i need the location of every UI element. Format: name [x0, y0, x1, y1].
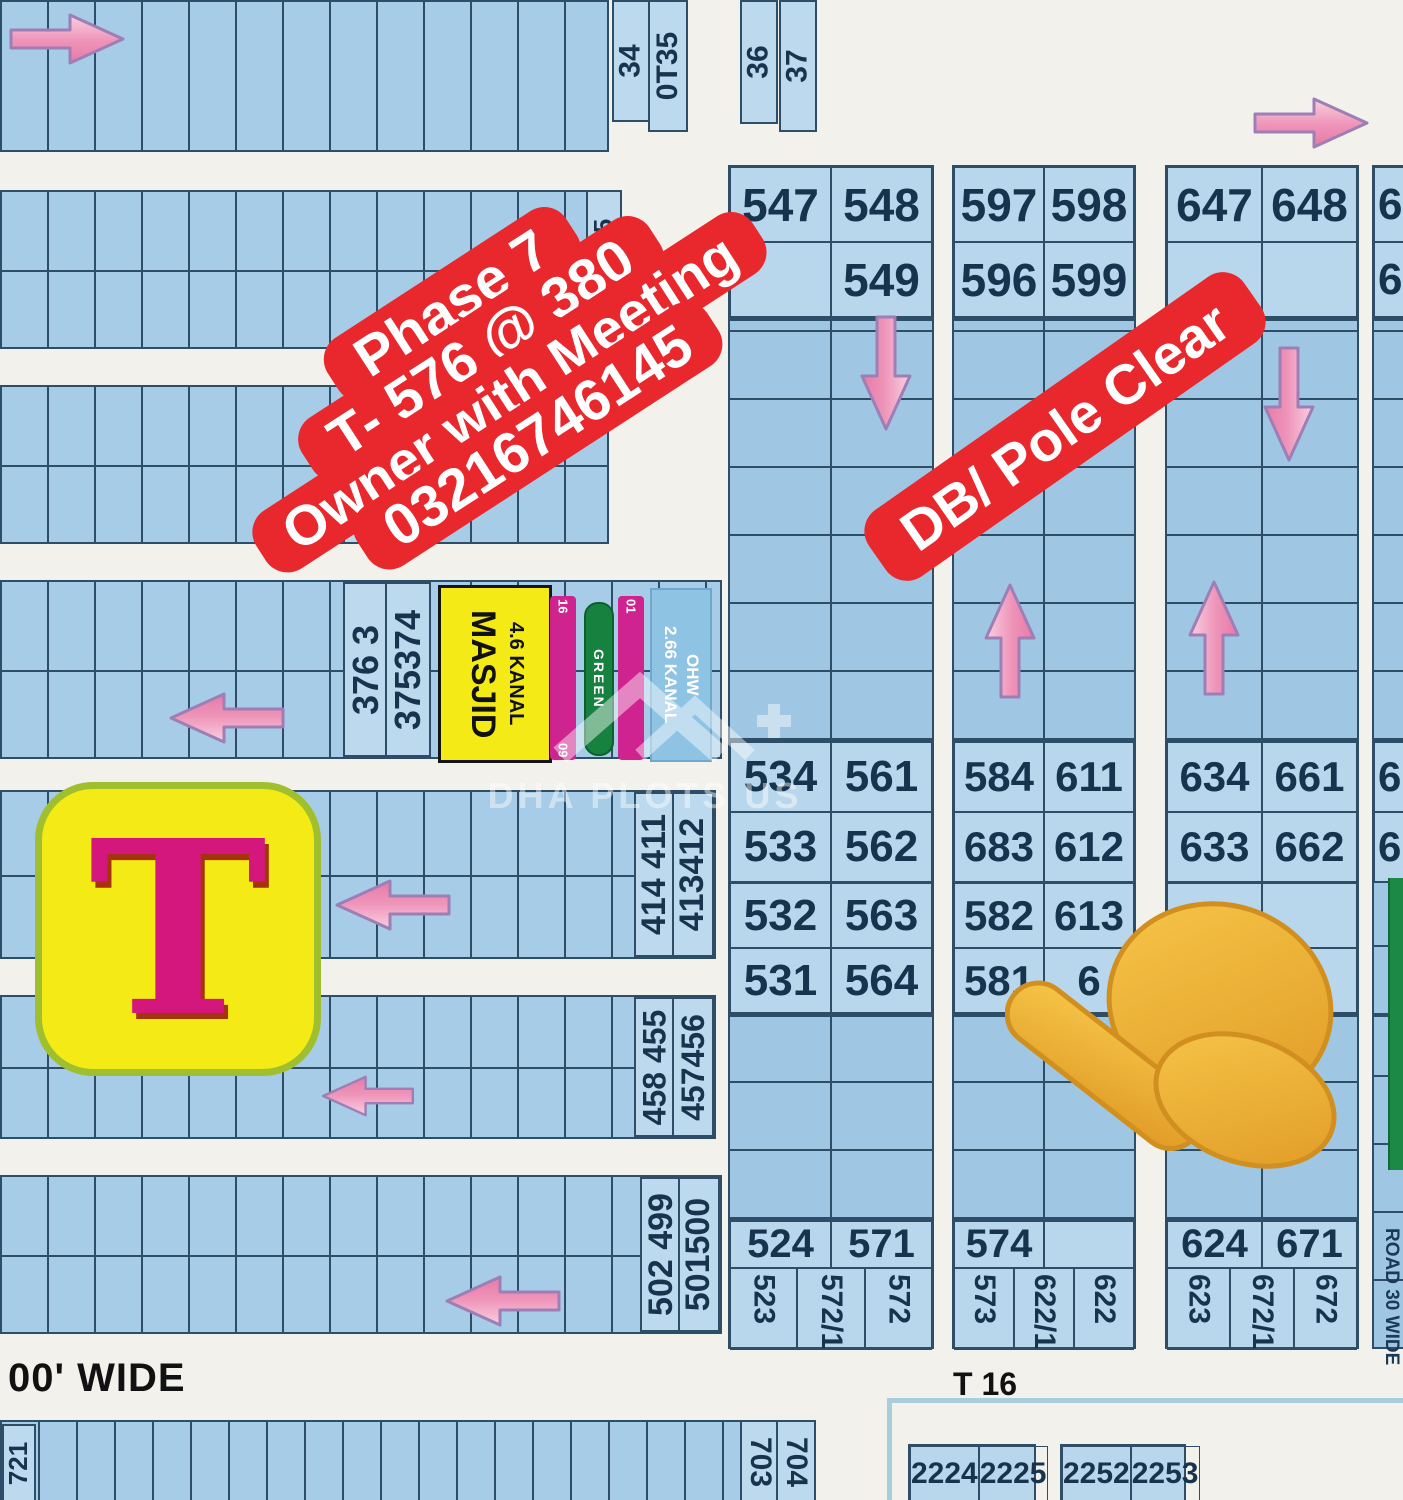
plot-number-cell: 633 — [1167, 812, 1262, 882]
watermark-logo-icon — [465, 660, 825, 770]
plot-number-cell: 599 — [1044, 242, 1134, 317]
plot-label-376: 376 3 — [343, 582, 389, 757]
arrow-right-icon — [1250, 92, 1372, 154]
pointing-hand-icon — [1005, 875, 1350, 1210]
plot-number-cell: 6 — [1374, 812, 1403, 882]
green-strip — [1388, 878, 1403, 1170]
plot-number-cell: 6 — [1374, 242, 1403, 317]
plot-label-502-499: 502 499 — [640, 1177, 682, 1332]
plot-label-457-456: 457456 — [672, 997, 714, 1137]
plot-block-c2: 634 661 633 662 — [1165, 740, 1359, 884]
plot-number-cell: 672 — [1294, 1268, 1357, 1350]
plot-number-cell: 523 — [730, 1268, 797, 1350]
plot-number-cell: 624 — [1167, 1221, 1262, 1268]
bar-number-top: 16 — [556, 599, 571, 613]
plot-number-cell: 532 — [730, 883, 831, 948]
plot-block-2252: 2252 2253 — [1060, 1444, 1186, 1500]
plot-block-d2: 6 6 — [1372, 740, 1403, 884]
arrow-up-icon — [979, 580, 1041, 702]
plot-block-b2: 584 611 683 612 — [952, 740, 1136, 884]
plot-label-458-455: 458 455 — [634, 997, 676, 1137]
plot-block-bottom-a: 524 571 523 572/1 572 — [728, 1219, 934, 1349]
plot-number-cell: 6 — [1374, 167, 1403, 242]
road-30-wide-label: ROAD 30 WIDE — [1380, 1228, 1402, 1500]
strip-divider — [2, 1255, 720, 1257]
arrow-down-icon — [855, 312, 917, 434]
t-sector-logo: T — [35, 782, 321, 1076]
plot-label-704: 704 — [776, 1420, 816, 1500]
t16-label: T 16 — [953, 1366, 1017, 1403]
plot-block-bottom-c: 624 671 623 672/1 672 — [1165, 1219, 1359, 1349]
plot-number-cell — [1044, 1221, 1134, 1268]
plot-row: 574 — [954, 1221, 1134, 1268]
plot-number-cell: 2224 — [910, 1446, 979, 1500]
plot-number-cell: 524 — [730, 1221, 831, 1268]
plot-number-cell: 661 — [1262, 742, 1357, 812]
plot-strip-h — [0, 1420, 816, 1500]
watermark: DHA PLOTS US — [465, 660, 825, 840]
watermark-text: DHA PLOTS US — [465, 775, 825, 817]
road-wide-label: 00' WIDE — [8, 1356, 186, 1401]
plot-label-375-374: 375374 — [385, 582, 431, 757]
plot-number-cell: 572/1 — [797, 1268, 864, 1350]
arrow-up-icon — [1183, 577, 1245, 699]
plot-row: 623 672/1 672 — [1167, 1268, 1357, 1350]
plot-number-cell: 573 — [954, 1268, 1014, 1350]
plot-label-703: 703 — [740, 1420, 780, 1500]
plot-number-cell: 531 — [730, 948, 831, 1013]
plot-number-cell: 564 — [831, 948, 932, 1013]
plot-number-cell: 623 — [1167, 1268, 1230, 1350]
bar-number-top: 01 — [624, 599, 639, 613]
plot-body-d1 — [1372, 319, 1403, 740]
plot-block-2224: 2224 2225 — [908, 1444, 1036, 1500]
plot-number-cell: 563 — [831, 883, 932, 948]
plot-number-cell: 2252 — [1062, 1446, 1131, 1500]
plot-block-a3: 532 563 531 564 — [728, 881, 934, 1015]
plot-number-cell: 662 — [1262, 812, 1357, 882]
plot-number-cell: 622/1 — [1014, 1268, 1074, 1350]
plot-label-0t35: 0T35 — [648, 0, 688, 132]
plot-number-cell: 634 — [1167, 742, 1262, 812]
plot-number-cell: 598 — [1044, 167, 1134, 242]
plot-block-header-b: 597 598 596 599 — [952, 165, 1136, 319]
plot-block-header-d: 6 6 — [1372, 165, 1403, 319]
arrow-down-icon — [1258, 343, 1320, 465]
plot-label-721: 721 — [2, 1424, 36, 1500]
arrow-left-icon — [442, 1270, 564, 1332]
plot-row: 624 671 — [1167, 1221, 1357, 1268]
t-sector-letter: T — [89, 809, 268, 1049]
plot-strip-g — [0, 1175, 722, 1334]
plot-number-cell: 597 — [954, 167, 1044, 242]
plot-row: 523 572/1 572 — [730, 1268, 932, 1350]
plot-number-cell: 622 — [1074, 1268, 1134, 1350]
plot-block-bottom-b: 574 573 622/1 622 — [952, 1219, 1136, 1349]
plot-number-cell: 683 — [954, 812, 1044, 882]
plot-label-34: 34 — [612, 0, 650, 122]
plot-number-cell: 672/1 — [1230, 1268, 1293, 1350]
plot-number-cell: 2253 — [1131, 1446, 1200, 1500]
plot-number-cell: 561 — [831, 742, 932, 812]
arrow-left-icon — [319, 1071, 417, 1121]
arrow-right-icon — [6, 8, 128, 70]
plot-number-cell: 562 — [831, 812, 932, 882]
plot-number-cell: 584 — [954, 742, 1044, 812]
plot-number-cell: 612 — [1044, 812, 1134, 882]
plot-number-cell: 6 — [1374, 742, 1403, 812]
plot-number-cell: 2225 — [979, 1446, 1048, 1500]
plot-body-a2 — [728, 1015, 934, 1219]
plot-label-501-500: 501500 — [678, 1177, 720, 1332]
plot-number-cell: 596 — [954, 242, 1044, 317]
plot-number-cell: 574 — [954, 1221, 1044, 1268]
plot-number-cell: 647 — [1167, 167, 1262, 242]
arrow-left-icon — [332, 874, 454, 936]
plot-row: 573 622/1 622 — [954, 1268, 1134, 1350]
plot-number-cell: 572 — [865, 1268, 932, 1350]
plot-row: 524 571 — [730, 1221, 932, 1268]
plot-number-cell: 671 — [1262, 1221, 1357, 1268]
plot-number-cell: 571 — [831, 1221, 932, 1268]
plot-map-canvas: 34 0T35 36 37 475 338 3 337336 376 3 375… — [0, 0, 1403, 1500]
arrow-left-icon — [166, 687, 288, 749]
plot-number-cell: 611 — [1044, 742, 1134, 812]
